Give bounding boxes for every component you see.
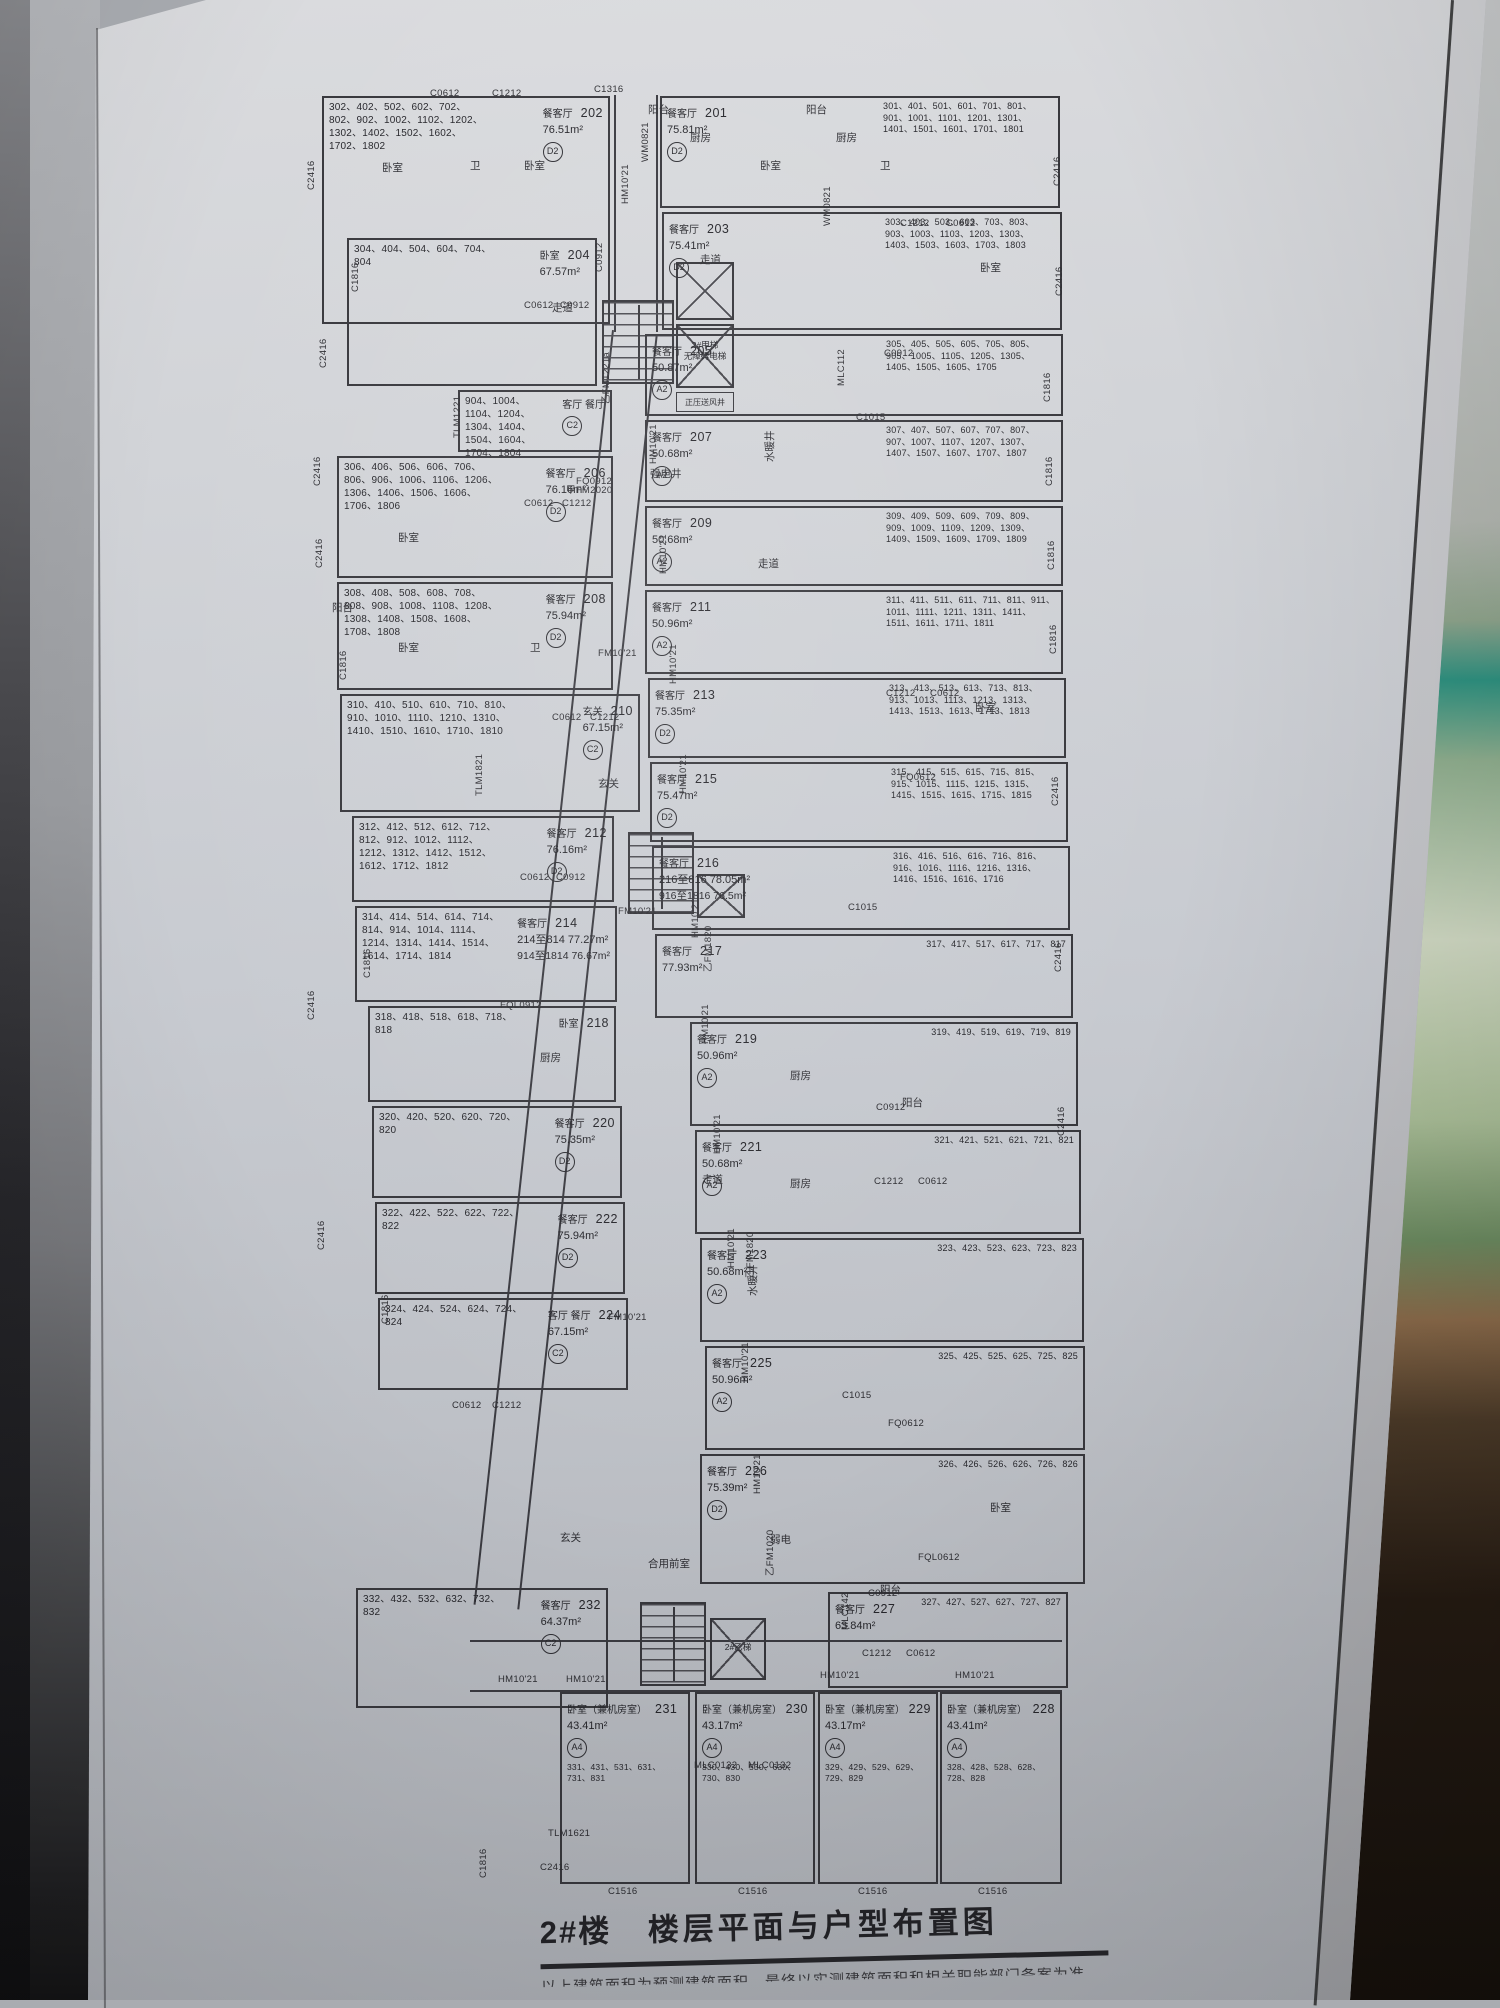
unit-floor-list: 307、407、507、607、707、807、907、1007、1107、12… (886, 425, 1056, 497)
metal-frame-edge (0, 0, 30, 2000)
unit-floor-list: 316、416、516、616、716、816、916、1016、1116、12… (893, 851, 1063, 925)
room-label: 厨房 (790, 1176, 811, 1191)
unit-door-mark: D2 (543, 142, 563, 162)
unit-number: 209 (690, 515, 712, 531)
unit-floor-list: 318、418、518、618、718、818 (375, 1011, 515, 1097)
window-code-label: MLC142 (840, 1592, 851, 1630)
window-code-label: C2416 (318, 339, 329, 369)
window-code-label: HM10'21 (820, 1670, 860, 1681)
window-code-label: C2416 (316, 1221, 327, 1251)
window-code-label: C0612 (452, 1400, 482, 1411)
apartment-unit: 904、1004、1104、1204、1304、1404、1504、1604、1… (458, 390, 612, 452)
unit-room-label: 客厅 餐厅 (548, 1310, 591, 1323)
unit-room-label: 卧室（兼机房室） (825, 1704, 901, 1717)
unit-main-labels: 卧室（兼机房室） 229 43.17m² A4 (825, 1697, 931, 1758)
apartment-unit: 320、420、520、620、720、820 餐客厅 220 75.35m² … (372, 1106, 622, 1198)
unit-main-labels: 餐客厅 222 75.94m² D2 (558, 1207, 618, 1289)
unit-floor-list: 306、406、506、606、706、806、906、1006、1106、12… (344, 461, 501, 573)
elevator-b-name: 2#乙梯 (725, 1642, 751, 1652)
unit-room-label: 餐客厅 (669, 224, 699, 237)
window-code-label: HM10'21 (668, 644, 679, 684)
unit-area: 75.94m² (546, 609, 586, 623)
window-code-label: C2416 (1056, 1107, 1067, 1137)
room-label: 走道 (758, 556, 779, 571)
unit-area: 43.17m² (702, 1719, 742, 1733)
window-code-label: HM10'21 (566, 1674, 606, 1685)
window-code-label: FM10'21 (608, 1312, 647, 1323)
unit-area: 216至816 78.05m² (659, 873, 750, 887)
unit-floor-list: 904、1004、1104、1204、1304、1404、1504、1604、1… (465, 395, 549, 447)
room-label: 阳台 (880, 1582, 901, 1597)
window-code-label: TLM1221 (452, 396, 463, 438)
unit-door-mark: D2 (667, 142, 687, 162)
unit-door-mark: D2 (555, 1152, 575, 1172)
unit-number: 219 (735, 1031, 757, 1047)
window-code-label: C2416 (306, 991, 317, 1021)
unit-main-labels: 卧室（兼机房室） 230 43.17m² A4 (702, 1697, 808, 1758)
unit-room-label: 餐客厅 (655, 690, 685, 703)
apartment-unit: 331、431、531、631、731、831 卧室（兼机房室） 231 43.… (560, 1692, 690, 1884)
shared-lobby-text: 合用前室 (648, 1558, 690, 1570)
unit-number: 213 (693, 687, 715, 703)
unit-floor-list: 310、410、510、610、710、810、910、1010、1110、12… (347, 699, 519, 807)
unit-number: 218 (587, 1015, 609, 1031)
unit-number: 230 (786, 1701, 808, 1717)
room-label: 玄关 (598, 776, 619, 791)
unit-number: 205 (690, 343, 712, 359)
unit-number: 201 (705, 105, 727, 121)
unit-room-label: 餐客厅 (517, 918, 547, 931)
apartment-unit: 330、430、530、630、730、830 卧室（兼机房室） 230 43.… (695, 1692, 815, 1884)
window-code-label: C0612 (906, 1648, 936, 1659)
unit-main-labels: 卧室（兼机房室） 231 43.41m² A4 (567, 1697, 683, 1758)
window-code-label: FM10'21 (618, 906, 657, 917)
unit-room-label: 餐客厅 (546, 468, 576, 481)
room-label: 走道 (552, 300, 573, 315)
unit-room-label: 餐客厅 (662, 946, 692, 959)
room-label: 阳台 (902, 1095, 923, 1110)
room-label: 弱电 (770, 1532, 791, 1547)
unit-area-secondary: 914至1814 76.67m² (517, 950, 610, 964)
room-label: 阳台 (332, 600, 353, 615)
window-code-label: C0612 (524, 498, 554, 509)
room-label: 卧室 (398, 530, 419, 545)
unit-door-mark: C2 (548, 1344, 568, 1364)
title-text: 楼层平面与户型布置图 (647, 1904, 998, 1948)
window-code-label: C1015 (842, 1390, 872, 1401)
unit-area: 64.37m² (541, 1615, 581, 1629)
window-code-label: 乙FM1820 (700, 926, 714, 972)
unit-room-label: 餐客厅 (652, 346, 682, 359)
unit-floor-list: 303、403、503、603、703、803、903、1003、1103、12… (885, 217, 1055, 325)
window-code-label: C2416 (540, 1862, 570, 1873)
unit-number: 229 (909, 1701, 931, 1717)
window-code-label: C2416 (1053, 943, 1064, 973)
unit-floor-list: 321、421、521、621、721、821 (934, 1135, 1074, 1229)
apartment-unit: 303、403、503、603、703、803、903、1003、1103、12… (662, 212, 1062, 330)
elevator-b-label: 2#乙梯 (704, 1642, 772, 1653)
apartment-unit: 308、408、508、608、708、808、908、1008、1108、12… (337, 582, 613, 690)
unit-area: 75.39m² (707, 1481, 747, 1495)
window-code-label: C1212 (492, 1400, 522, 1411)
unit-area: 75.94m² (558, 1229, 598, 1243)
unit-number: 212 (585, 825, 607, 841)
photo-scene: 2#甲梯 无障碍电梯 正压送风井 2#乙梯 合用前室 302、402、502、6… (0, 0, 1500, 2000)
unit-floor-list: 328、428、528、628、728、828 (947, 1762, 1055, 1784)
window-code-label: C2416 (306, 161, 317, 191)
window-code-label: C1816 (1048, 625, 1059, 655)
window-code-label: C0612 (524, 300, 554, 311)
room-label: 水暖井 (745, 1265, 760, 1297)
drawing-title: 2#楼 楼层平面与户型布置图 以上建筑面积为预测建筑面积，最终以实测建筑面积和相… (539, 1893, 1131, 1987)
window-code-label: C1212 (562, 498, 592, 509)
unit-door-mark: D2 (655, 724, 675, 744)
unit-main-labels: 餐客厅 208 75.94m² D2 (546, 587, 606, 685)
window-code-label: 乙FM1221а (598, 352, 612, 404)
window-code-label: C1212 (874, 1176, 904, 1187)
window-code-label: C1516 (738, 1886, 768, 1897)
window-code-label: HM10'21 (658, 534, 669, 574)
window-code-label: C1212 (492, 88, 522, 99)
window-code-label: C1516 (608, 1886, 638, 1897)
unit-number: 227 (873, 1601, 895, 1617)
unit-floor-list: 324、424、524、624、724、824 (385, 1303, 527, 1385)
unit-room-label: 餐客厅 (712, 1358, 742, 1371)
room-label: 走道 (700, 252, 721, 267)
unit-area-secondary: 916至1816 76.5m² (659, 890, 746, 904)
unit-area: 43.41m² (947, 1719, 987, 1733)
room-label: 卧室 (975, 700, 996, 715)
unit-room-label: 卧室 (540, 250, 560, 263)
unit-main-labels: 餐客厅 220 75.35m² D2 (555, 1111, 615, 1193)
unit-door-mark: A4 (567, 1738, 587, 1758)
unit-main-labels: 餐客厅 205 50.87m² A2 (652, 339, 712, 411)
window-code-label: C0612 (918, 1176, 948, 1187)
window-code-label: TLM1821 (474, 754, 485, 796)
apartment-unit: 305、405、505、605、705、805、905、1005、1105、12… (645, 334, 1063, 416)
window-code-label: WM0821 (822, 186, 833, 226)
window-code-label: HM10'21 (678, 754, 689, 794)
unit-area: 75.35m² (655, 705, 695, 719)
room-label: 卫 (880, 158, 891, 173)
unit-room-label: 餐客厅 (667, 108, 697, 121)
window-code-label: FQ0612 (888, 1418, 924, 1429)
unit-room-label: 卧室（兼机房室） (567, 1704, 647, 1717)
unit-room-label: 餐客厅 (652, 518, 682, 531)
unit-room-label: 卧室（兼机房室） (947, 1704, 1025, 1717)
window-code-label: C1212 (900, 218, 930, 229)
unit-number: 214 (555, 915, 577, 931)
unit-number: 220 (593, 1115, 615, 1131)
room-label: 卫 (530, 640, 541, 655)
room-label: 卧室 (382, 160, 403, 175)
window-code-label: C1816 (350, 263, 361, 293)
window-code-label: C1516 (858, 1886, 888, 1897)
unit-door-mark: D2 (669, 258, 689, 278)
window-code-label: HM10'21 (740, 1342, 751, 1382)
unit-room-label: 餐客厅 (546, 594, 576, 607)
apartment-unit: 301、401、501、601、701、801、901、1001、1101、12… (660, 96, 1060, 208)
room-label: 卧室 (524, 158, 545, 173)
unit-number: 211 (690, 599, 711, 615)
unit-area: 67.57m² (540, 265, 580, 279)
unit-area: 75.35m² (555, 1133, 595, 1147)
unit-main-labels: 餐客厅 232 64.37m² C2 (541, 1593, 601, 1703)
window-code-label: C1816 (478, 1849, 489, 1879)
unit-room-label: 餐客厅 (652, 602, 682, 615)
unit-door-mark: C2 (583, 740, 603, 760)
window-code-label: C0912 (556, 872, 586, 883)
unit-number: 215 (695, 771, 717, 787)
unit-main-labels: 餐客厅 207 50.68m² A2 (652, 425, 712, 497)
window-code-label: C1212 (862, 1648, 892, 1659)
unit-area: 77.93m² (662, 961, 702, 975)
unit-number: 207 (690, 429, 712, 445)
window-code-label: HM10'21 (498, 1674, 538, 1685)
unit-floor-list: 332、432、532、632、732、832 (363, 1593, 506, 1703)
apartment-unit: 328、428、528、628、728、828 卧室（兼机房室） 228 43.… (940, 1692, 1062, 1884)
window-code-label: WM0821 (640, 122, 651, 162)
unit-door-mark: A4 (947, 1738, 967, 1758)
window-code-label: C1816 (1042, 373, 1053, 403)
unit-area: 50.68m² (702, 1157, 742, 1171)
unit-number: 225 (750, 1355, 772, 1371)
apartment-unit: 322、422、522、622、722、822 餐客厅 222 75.94m² … (375, 1202, 625, 1294)
window-code-label: FM10'21 (598, 648, 637, 659)
unit-number: 202 (581, 105, 603, 121)
unit-area: 50.96m² (697, 1049, 737, 1063)
window-code-label: HM10'21 (955, 1670, 995, 1681)
apartment-unit: 329、429、529、629、729、829 卧室（兼机房室） 229 43.… (818, 1692, 938, 1884)
room-label: 水暖井 (762, 431, 777, 463)
window-code-label: 甲FM2020 (566, 482, 612, 496)
unit-main-labels: 卧室 218 (559, 1011, 609, 1097)
room-label: 厨房 (790, 1068, 811, 1083)
room-label: 卧室 (398, 640, 419, 655)
window-code-label: C0912 (884, 348, 914, 359)
apartment-unit: 309、409、509、609、709、809、909、1009、1109、12… (645, 506, 1063, 586)
unit-door-mark: A2 (712, 1392, 732, 1412)
window-code-label: HM10'21 (620, 164, 631, 204)
unit-main-labels: 餐客厅 203 75.41m² D2 (669, 217, 729, 325)
unit-floor-list: 308、408、508、608、708、808、908、1008、1108、12… (344, 587, 501, 685)
apartment-unit: 325、425、525、625、725、825 餐客厅 225 50.96m² … (705, 1346, 1085, 1450)
unit-area: 67.15m² (548, 1325, 588, 1339)
apartment-unit: 314、414、514、614、714、814、914、1014、1114、12… (355, 906, 617, 1002)
unit-number: 231 (655, 1701, 677, 1717)
room-label: 厨房 (540, 1050, 561, 1065)
unit-main-labels: 餐客厅 211 50.96m² A2 (652, 595, 711, 669)
window-code-label: C1015 (848, 902, 878, 913)
unit-area: 50.87m² (652, 361, 692, 375)
stair-core-bottom (640, 1602, 706, 1686)
unit-floor-list: 329、429、529、629、729、829 (825, 1762, 931, 1784)
window-code-label: C0612 (520, 872, 550, 883)
room-label: 玄关 (560, 1530, 581, 1545)
corridor-upper (614, 95, 658, 332)
unit-floor-list: 325、425、525、625、725、825 (938, 1351, 1078, 1445)
room-label: 厨房 (690, 130, 711, 145)
shared-lobby-label: 合用前室 (648, 1556, 690, 1571)
window-code-label: C1015 (856, 412, 886, 423)
unit-floor-list: 311、411、511、611、711、811、911、1011、1111、12… (886, 595, 1056, 669)
unit-area: 43.17m² (825, 1719, 865, 1733)
unit-door-mark: D2 (546, 628, 566, 648)
unit-area: 50.96m² (652, 617, 692, 631)
unit-area: 43.41m² (567, 1719, 607, 1733)
unit-door-mark: D2 (657, 808, 677, 828)
unit-floor-list: 312、412、512、612、712、812、912、1012、1112、12… (359, 821, 508, 897)
unit-door-mark: A4 (825, 1738, 845, 1758)
apartment-unit: 324、424、524、624、724、824 客厅 餐厅 224 67.15m… (378, 1298, 628, 1390)
unit-main-labels: 餐客厅 201 75.81m² D2 (667, 101, 727, 203)
window-code-label: HM10'21 (726, 1228, 737, 1268)
unit-number: 216 (697, 855, 719, 871)
unit-door-mark: A2 (707, 1284, 727, 1304)
unit-room-label: 餐客厅 (558, 1214, 588, 1227)
window-code-label: C1212 (590, 712, 620, 723)
window-code-label: MLC0132 (748, 1760, 791, 1771)
window-code-label: MLC0132 (694, 1760, 737, 1771)
unit-main-labels: 卧室（兼机房室） 228 43.41m² A4 (947, 1697, 1055, 1758)
apartment-unit: 318、418、518、618、718、818 卧室 218 (368, 1006, 616, 1102)
unit-room-label: 餐客厅 (541, 1600, 571, 1613)
floor-plan-poster: 2#甲梯 无障碍电梯 正压送风井 2#乙梯 合用前室 302、402、502、6… (0, 0, 1500, 2000)
unit-main-labels: 餐客厅 212 76.16m² D2 (547, 821, 607, 897)
window-code-label: C0612 (552, 712, 582, 723)
room-label: 强电井 (650, 466, 682, 481)
unit-room-label: 卧室（兼机房室） (702, 1704, 778, 1717)
unit-floor-list: 314、414、514、614、714、814、914、1014、1114、12… (362, 911, 511, 997)
unit-floor-list: 320、420、520、620、720、820 (379, 1111, 521, 1193)
room-label: 卧室 (990, 1500, 1011, 1515)
room-label: 卧室 (980, 260, 1001, 275)
unit-floor-list: 304、404、504、604、704、804 (354, 243, 496, 381)
apartment-unit: 315、415、515、615、715、815、915、1015、1115、12… (650, 762, 1068, 842)
unit-main-labels: 餐客厅 216 216至816 78.05m² 916至1816 76.5m² (659, 851, 750, 925)
unit-area: 76.16m² (547, 843, 587, 857)
unit-floor-list: 319、419、519、619、719、819 (931, 1027, 1071, 1121)
window-code-label: C1316 (594, 84, 624, 95)
unit-floor-list: 323、423、523、623、723、823 (937, 1243, 1077, 1337)
apartment-unit: 313、413、513、613、713、813、913、1013、1113、12… (648, 678, 1066, 758)
unit-door-mark: C2 (541, 1634, 561, 1654)
unit-floor-list: 309、409、509、609、709、809、909、1009、1109、12… (886, 511, 1056, 581)
window-code-label: C2416 (1052, 157, 1063, 187)
unit-door-mark: A4 (702, 1738, 722, 1758)
unit-number: 203 (707, 221, 729, 237)
window-code-label: MLC112 (836, 349, 847, 386)
unit-area: 67.15m² (583, 721, 623, 735)
window-code-label: C1816 (380, 1295, 391, 1325)
window-code-label: HM10'21 (648, 424, 659, 464)
apartment-unit: 311、411、511、611、711、811、911、1011、1111、12… (645, 590, 1063, 674)
window-code-label: C0612 (930, 688, 960, 699)
window-code-label: C0912 (594, 243, 605, 273)
apartment-unit: 316、416、516、616、716、816、916、1016、1116、12… (652, 846, 1070, 930)
room-label: 卫 (470, 158, 481, 173)
room-label: 阳台 (806, 102, 827, 117)
window-code-label: C1816 (1044, 457, 1055, 487)
unit-room-label: 餐客厅 (547, 828, 577, 841)
room-label: 阳台 (648, 102, 669, 117)
apartment-unit: 332、432、532、632、732、832 餐客厅 232 64.37m² … (356, 1588, 608, 1708)
unit-main-labels: 餐客厅 214 214至814 77.27m² 914至1814 76.67m² (517, 911, 610, 997)
building-label: 2#楼 (539, 1913, 611, 1950)
window-code-label: C0612 (946, 218, 976, 229)
unit-floor-list: 317、417、517、617、717、817 (926, 939, 1066, 1013)
unit-area: 76.51m² (543, 123, 583, 137)
unit-door-mark: A2 (652, 380, 672, 400)
unit-number: 208 (584, 591, 606, 607)
unit-floor-list: 331、431、531、631、731、831 (567, 1762, 683, 1784)
unit-room-label: 餐客厅 (555, 1118, 585, 1131)
unit-room-label: 餐客厅 (707, 1466, 737, 1479)
window-code-label: C1212 (886, 688, 916, 699)
window-code-label: FQL0912 (500, 1000, 542, 1011)
window-code-label: C0612 (430, 88, 460, 99)
apartment-unit: 327、427、527、627、727、827 餐客厅 227 63.84m² (828, 1592, 1068, 1688)
window-code-label: C2416 (314, 539, 325, 569)
window-code-label: FQ0612 (900, 772, 936, 783)
room-label: 厨房 (836, 130, 857, 145)
window-code-label: TLM1621 (548, 1828, 590, 1839)
unit-door-mark: A2 (697, 1068, 717, 1088)
window-code-label: HM10'21 (700, 1004, 711, 1044)
unit-area: 214至814 77.27m² (517, 933, 608, 947)
window-code-label: FQL0612 (918, 1552, 960, 1563)
unit-door-mark: D2 (558, 1248, 578, 1268)
apartment-unit: 312、412、512、612、712、812、912、1012、1112、12… (352, 816, 614, 902)
window-code-label: C2416 (312, 457, 323, 487)
window-code-label: C2416 (1054, 267, 1065, 297)
unit-door-mark: D2 (707, 1500, 727, 1520)
room-label: 走道 (702, 1172, 723, 1187)
unit-number: 222 (596, 1211, 618, 1227)
window-code-label: C1816 (1046, 541, 1057, 571)
window-code-label: HM10'21 (712, 1114, 723, 1154)
unit-room-label: 餐客厅 (543, 108, 573, 121)
unit-number: 232 (579, 1597, 601, 1613)
unit-number: 221 (740, 1139, 762, 1155)
apartment-unit: 317、417、517、617、717、817 餐客厅 217 77.93m² (655, 934, 1073, 1018)
unit-floor-list: 301、401、501、601、701、801、901、1001、1101、12… (883, 101, 1053, 203)
window-code-label: C1816 (338, 651, 349, 681)
apartment-unit: 306、406、506、606、706、806、906、1006、1106、12… (337, 456, 613, 578)
window-code-label: C1816 (362, 949, 373, 979)
apartment-unit: 307、407、507、607、707、807、907、1007、1107、12… (645, 420, 1063, 502)
unit-number: 204 (568, 247, 590, 263)
unit-floor-list: 322、422、522、622、722、822 (382, 1207, 524, 1289)
unit-room-label: 餐客厅 (659, 858, 689, 871)
unit-door-mark: C2 (562, 416, 582, 436)
unit-number: 228 (1033, 1701, 1055, 1717)
window-code-label: C2416 (1050, 777, 1061, 807)
unit-room-label: 卧室 (559, 1018, 579, 1031)
window-code-label: HM10'21 (752, 1454, 763, 1494)
unit-main-labels: 餐客厅 213 75.35m² D2 (655, 683, 715, 753)
room-label: 卧室 (760, 158, 781, 173)
floor-plan-drawing: 2#甲梯 无障碍电梯 正压送风井 2#乙梯 合用前室 302、402、502、6… (0, 0, 1500, 2000)
